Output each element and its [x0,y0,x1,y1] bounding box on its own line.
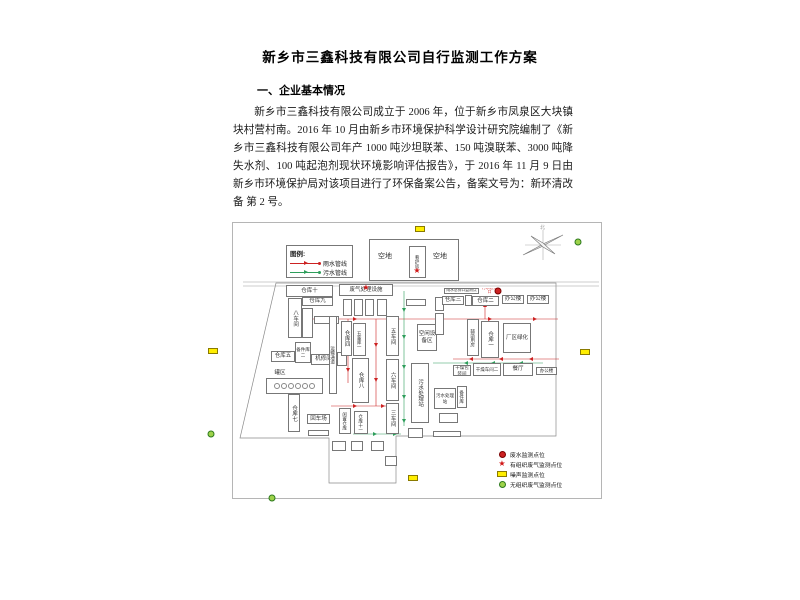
rain-pipe-sample-icon [290,263,320,264]
tank-icon [288,383,294,389]
yellow-rect-marker-icon [208,348,218,354]
building-污水总排口: 污水总排口 [481,288,498,294]
building [308,430,329,436]
building-办公楼: 办公楼 [527,295,549,304]
building-看护房: 看护房 [409,246,426,278]
building-三车间: 三车间 [386,403,399,434]
building-仓库十: 仓库十 [286,285,333,297]
building-五车间: 五车间 [386,316,399,356]
building-备件库二: 备件库二 [295,342,311,363]
building [302,308,313,338]
building-五金库一: 五金库一 [353,323,366,356]
legend-row-sewage: 污水管线 [290,268,349,277]
building-厂区绿化: 厂区绿化 [503,323,531,353]
building-闲置仓库: 闲置仓库 [339,408,351,434]
pipeline-legend-title: 图例: [290,248,349,258]
legend-row-organized-gas: ★ 有组织废气监测点位 [496,459,598,469]
fugitive-gas-point-icon [499,481,506,488]
building [439,413,458,423]
building [408,428,423,438]
tank-icon [309,383,315,389]
tank-icon [302,383,308,389]
tank-icon [281,383,287,389]
building-污水处理站: 污水处理站 [434,388,456,409]
rain-pipe-label: 雨水管线 [323,259,347,268]
building-罐区: 罐区 [271,369,289,377]
green-circle-marker-icon [208,431,215,438]
building [332,441,346,451]
noise-point-label: 噪声监测点位 [510,470,545,479]
building [266,378,323,394]
building-仓库九: 仓库九 [302,297,333,306]
section1-paragraph: 新乡市三鑫科技有限公司成立于 2006 年，位于新乡市凤泉区大块镇块村营村南。2… [233,104,573,212]
building-辅助用房: 辅助用房 [467,319,479,356]
building-仓库八: 仓库八 [352,358,369,403]
building [435,313,444,335]
sewage-pipe-label: 污水管线 [323,268,347,277]
building-干燥车间二: 干燥车间二 [473,363,501,376]
building-废气处理设施: 废气处理设施 [339,284,393,296]
tank-icon [295,383,301,389]
section1-heading: 一、企业基本情况 [257,82,573,98]
fugitive-gas-point-label: 无组织废气监测点位 [510,480,562,489]
building-仓库十一: 仓库十一 [354,411,368,434]
monitoring-point-legend: 废水监测点位 ★ 有组织废气监测点位 噪声监测点位 无组织废气监测点位 [496,449,598,489]
building [406,299,426,306]
building [371,441,384,451]
building-仓库四: 仓库四 [341,321,352,356]
building-干燥包装间: 干燥包装间 [453,365,471,376]
compass-icon [520,226,568,264]
building-空地: 空地 [375,251,395,263]
legend-row-wastewater: 废水监测点位 [496,449,598,459]
building-仓库二: 仓库二 [472,296,499,306]
building-办公楼: 办公楼 [536,367,557,375]
organized-gas-point-label: 有组织废气监测点位 [510,460,562,469]
organized-gas-point-icon: ★ [498,460,505,468]
building [377,299,387,316]
building-仓库七: 仓库七 [288,394,300,432]
building [351,441,363,451]
building-备件库: 备件库 [457,386,467,408]
tank-icon [274,383,280,389]
wastewater-point-icon [499,451,506,458]
legend-row-rain: 雨水管线 [290,259,349,268]
building [433,431,461,437]
building-回车场: 回车场 [307,414,330,424]
building-污水处理站: 污水处理站 [411,363,429,423]
building-仓库五: 仓库五 [271,351,295,362]
building-办公楼: 办公楼 [502,295,524,304]
building-空地: 空地 [430,251,450,263]
building [354,299,363,316]
building-雨水总排口监测点: 雨水总排口监测点 [444,288,479,294]
document-body: 一、企业基本情况 新乡市三鑫科技有限公司成立于 2006 年，位于新乡市凤泉区大… [233,78,573,242]
building [465,295,472,306]
legend-row-fugitive-gas: 无组织废气监测点位 [496,479,598,489]
building [343,299,352,316]
building-六车间: 六车间 [386,359,399,401]
building [365,299,374,316]
building-餐厅: 餐厅 [503,363,533,376]
building [385,456,397,466]
building-八车间: 八车间 [288,298,302,338]
document-title: 新乡市三鑫科技有限公司自行监测工作方案 [0,46,800,66]
pipeline-legend: 图例: 雨水管线 污水管线 [286,245,353,278]
sewage-pipe-sample-icon [290,272,320,273]
building-仓库一: 仓库一 [481,321,499,358]
building-空闲设备区: 空闲设备区 [417,324,437,351]
legend-row-noise: 噪声监测点位 [496,469,598,479]
document-page: 新乡市三鑫科技有限公司自行监测工作方案 一、企业基本情况 新乡市三鑫科技有限公司… [0,0,800,600]
compass-north-label: 北 [540,224,545,231]
wastewater-point-label: 废水监测点位 [510,450,545,459]
noise-point-icon [497,471,507,477]
building-仓库三: 仓库三 [442,296,464,305]
building-运输通道: 运输通道 [329,316,337,394]
